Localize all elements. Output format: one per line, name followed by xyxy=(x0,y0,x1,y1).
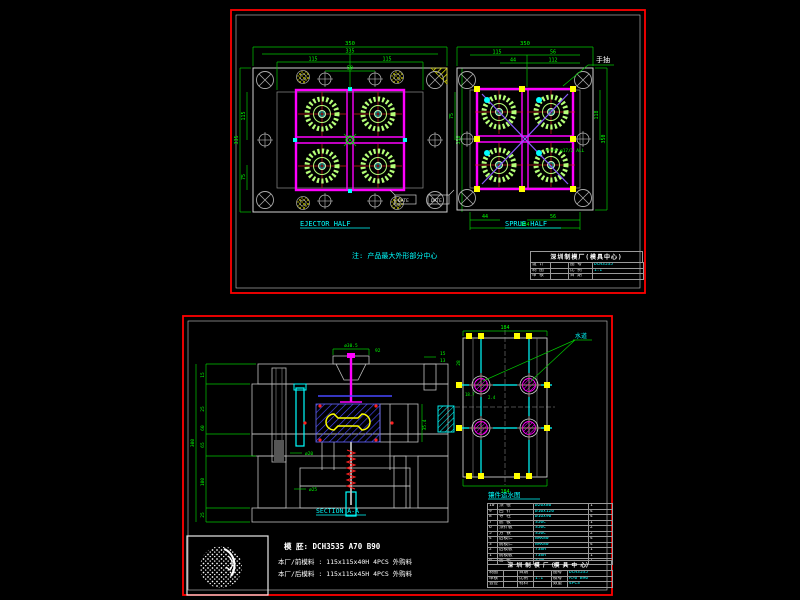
dim-label: 15 xyxy=(200,372,206,378)
dim-label: 75 xyxy=(241,174,247,180)
dim-label: 65 xyxy=(200,442,206,448)
dim-label: 350 xyxy=(601,134,607,143)
side-water-block xyxy=(438,406,454,432)
dim-label: 335 xyxy=(234,135,240,144)
sheet-note: 注: 产品最大外形部分中心 xyxy=(352,251,437,260)
ejector-dim-lines xyxy=(240,47,462,212)
dim-label: 115 xyxy=(382,57,391,63)
channel-label: 水道 xyxy=(575,332,587,340)
bom-block: 10顶 棍ø20x8019回 针ø10x12048导 柱ø16x9047底 板S… xyxy=(487,503,612,565)
thread-note: ø17/2 ALL xyxy=(560,148,585,154)
cad-drawing: 350 335 115 115 50 335 115 75 75 350 EJE… xyxy=(0,0,800,600)
dim-label: 115 xyxy=(241,111,247,120)
dim-label: 13 xyxy=(440,358,446,364)
top-title-block: 深圳制模厂(模具中心) 设 计图 号DCH3535制 图比 例1:1审 核日 期 xyxy=(530,251,643,280)
dim-label: 75 xyxy=(449,113,455,119)
dim-label: 44 xyxy=(482,214,488,220)
dim-label: 184 xyxy=(500,325,509,331)
dim-label: ø25 xyxy=(309,487,317,493)
dim-label: 100 xyxy=(200,478,206,486)
cooling-title: 镶件运水图 xyxy=(488,490,521,499)
bottom-title-block: 深 圳 制 模 厂（模 具 中 心） 制图日期图号DCH3535审核比例1:1模… xyxy=(487,560,612,588)
datum-label: DATE xyxy=(431,198,442,204)
dim-label: 92 xyxy=(375,348,381,354)
dim-label: ø30.5 xyxy=(344,343,358,349)
bottom-title-table: 制图日期图号DCH3535审核比例1:1模号A70 B90会签材料数量4PCS xyxy=(487,570,613,588)
dim-label: 25 xyxy=(200,512,206,518)
cooling-dim-lines xyxy=(463,331,592,486)
dim-label: 18.7 xyxy=(465,392,475,397)
water-fittings xyxy=(456,333,550,479)
dim-label: 335 xyxy=(345,49,354,55)
cad-workspace: 350 335 115 115 50 335 115 75 75 350 EJE… xyxy=(0,0,800,600)
company-logo xyxy=(187,536,268,595)
dim-label: ø20 xyxy=(305,451,313,457)
water-pin xyxy=(296,388,304,446)
cooling-view: 184 184 28 18.7 2.4 水道 镶件运水图 xyxy=(455,325,592,499)
dim-label: 350 xyxy=(345,41,355,47)
dim-label: 118 xyxy=(594,110,600,119)
ejector-view-title: EJECTOR HALF xyxy=(300,220,351,228)
dim-label: 115 xyxy=(492,50,501,56)
sprue-half-view: 350 115 56 44 112 44 56 184 118 350 ø17/… xyxy=(457,41,614,230)
dim-label: 56 xyxy=(550,214,556,220)
back-material-spec: 本厂/后模料 : 115x115x45H 4PCS 外购料 xyxy=(278,569,413,578)
top-title-table: 设 计图 号DCH3535制 图比 例1:1审 核日 期 xyxy=(530,262,644,280)
datum-label: DATE xyxy=(398,198,409,204)
dim-label: 15 xyxy=(440,351,446,357)
dim-label: 56 xyxy=(550,50,556,56)
company-name: 深 圳 制 模 厂（模 具 中 心） xyxy=(487,560,612,570)
section-title: SECTION A-A xyxy=(316,507,359,515)
dim-label: 35.4 xyxy=(422,419,428,430)
dim-label: 115 xyxy=(308,57,317,63)
logo-globe xyxy=(200,546,242,588)
dim-label: 50 xyxy=(347,66,353,72)
front-material-spec: 本厂/前模料 : 115x115x40H 4PCS 外购料 xyxy=(278,557,413,566)
bom-table: 10顶 棍ø20x8019回 针ø10x12048导 柱ø16x9047底 板S… xyxy=(487,503,613,565)
slide-label: 手抽 xyxy=(596,55,610,64)
dim-label: 300 xyxy=(190,439,196,447)
dim-label: 350 xyxy=(520,41,530,47)
dim-label: 44 xyxy=(510,58,516,64)
company-name: 深圳制模厂(模具中心) xyxy=(530,251,643,262)
mold-base-spec: 模 胚: DCH3535 A70 B90 xyxy=(284,541,381,551)
dim-label: 2.4 xyxy=(488,395,496,400)
sprue-view-title: SPRUE HALF xyxy=(505,220,547,228)
dim-label: 112 xyxy=(548,58,557,64)
dim-label: 25 xyxy=(200,406,206,412)
section-view: 15 25 60 65 100 25 300 ø30.5 92 15 13 35… xyxy=(190,343,454,522)
dim-label: 28 xyxy=(456,360,462,366)
dim-label: 60 xyxy=(200,425,206,431)
